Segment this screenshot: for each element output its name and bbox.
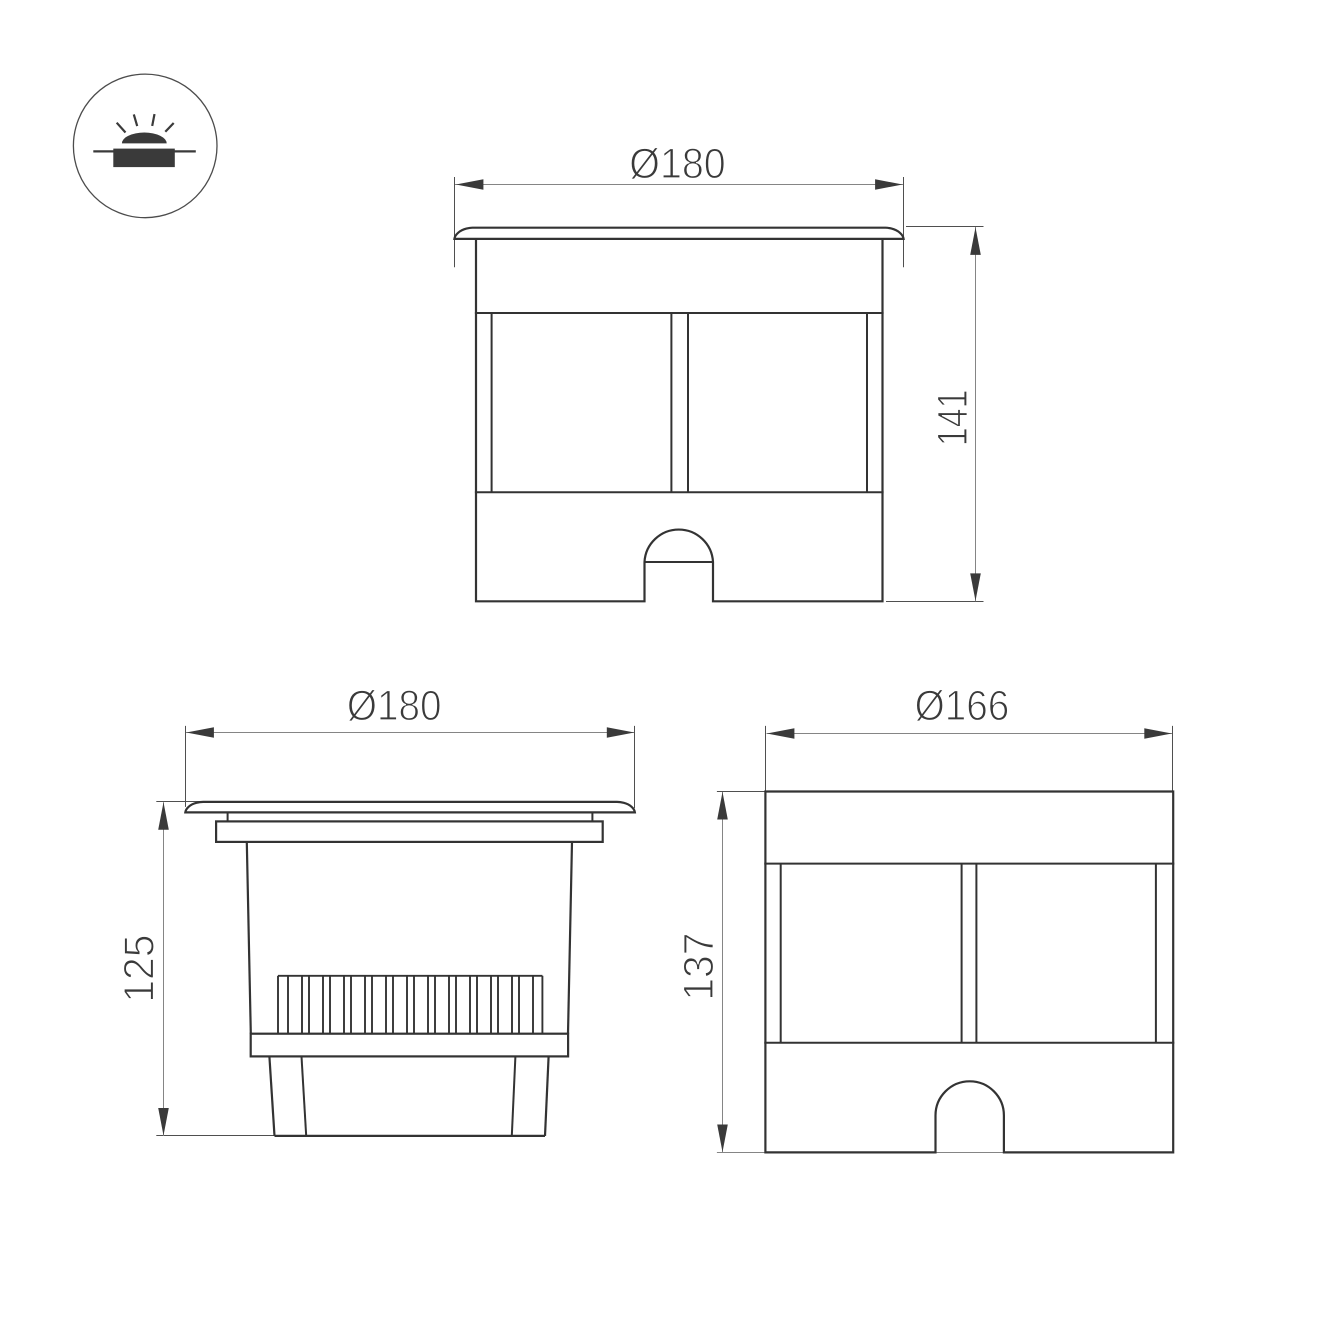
svg-text:Ø180: Ø180 (629, 139, 725, 187)
svg-text:137: 137 (674, 933, 722, 1001)
svg-text:Ø166: Ø166 (915, 681, 1010, 729)
svg-text:Ø180: Ø180 (347, 681, 442, 729)
svg-text:141: 141 (929, 389, 977, 446)
svg-text:125: 125 (115, 935, 163, 1003)
